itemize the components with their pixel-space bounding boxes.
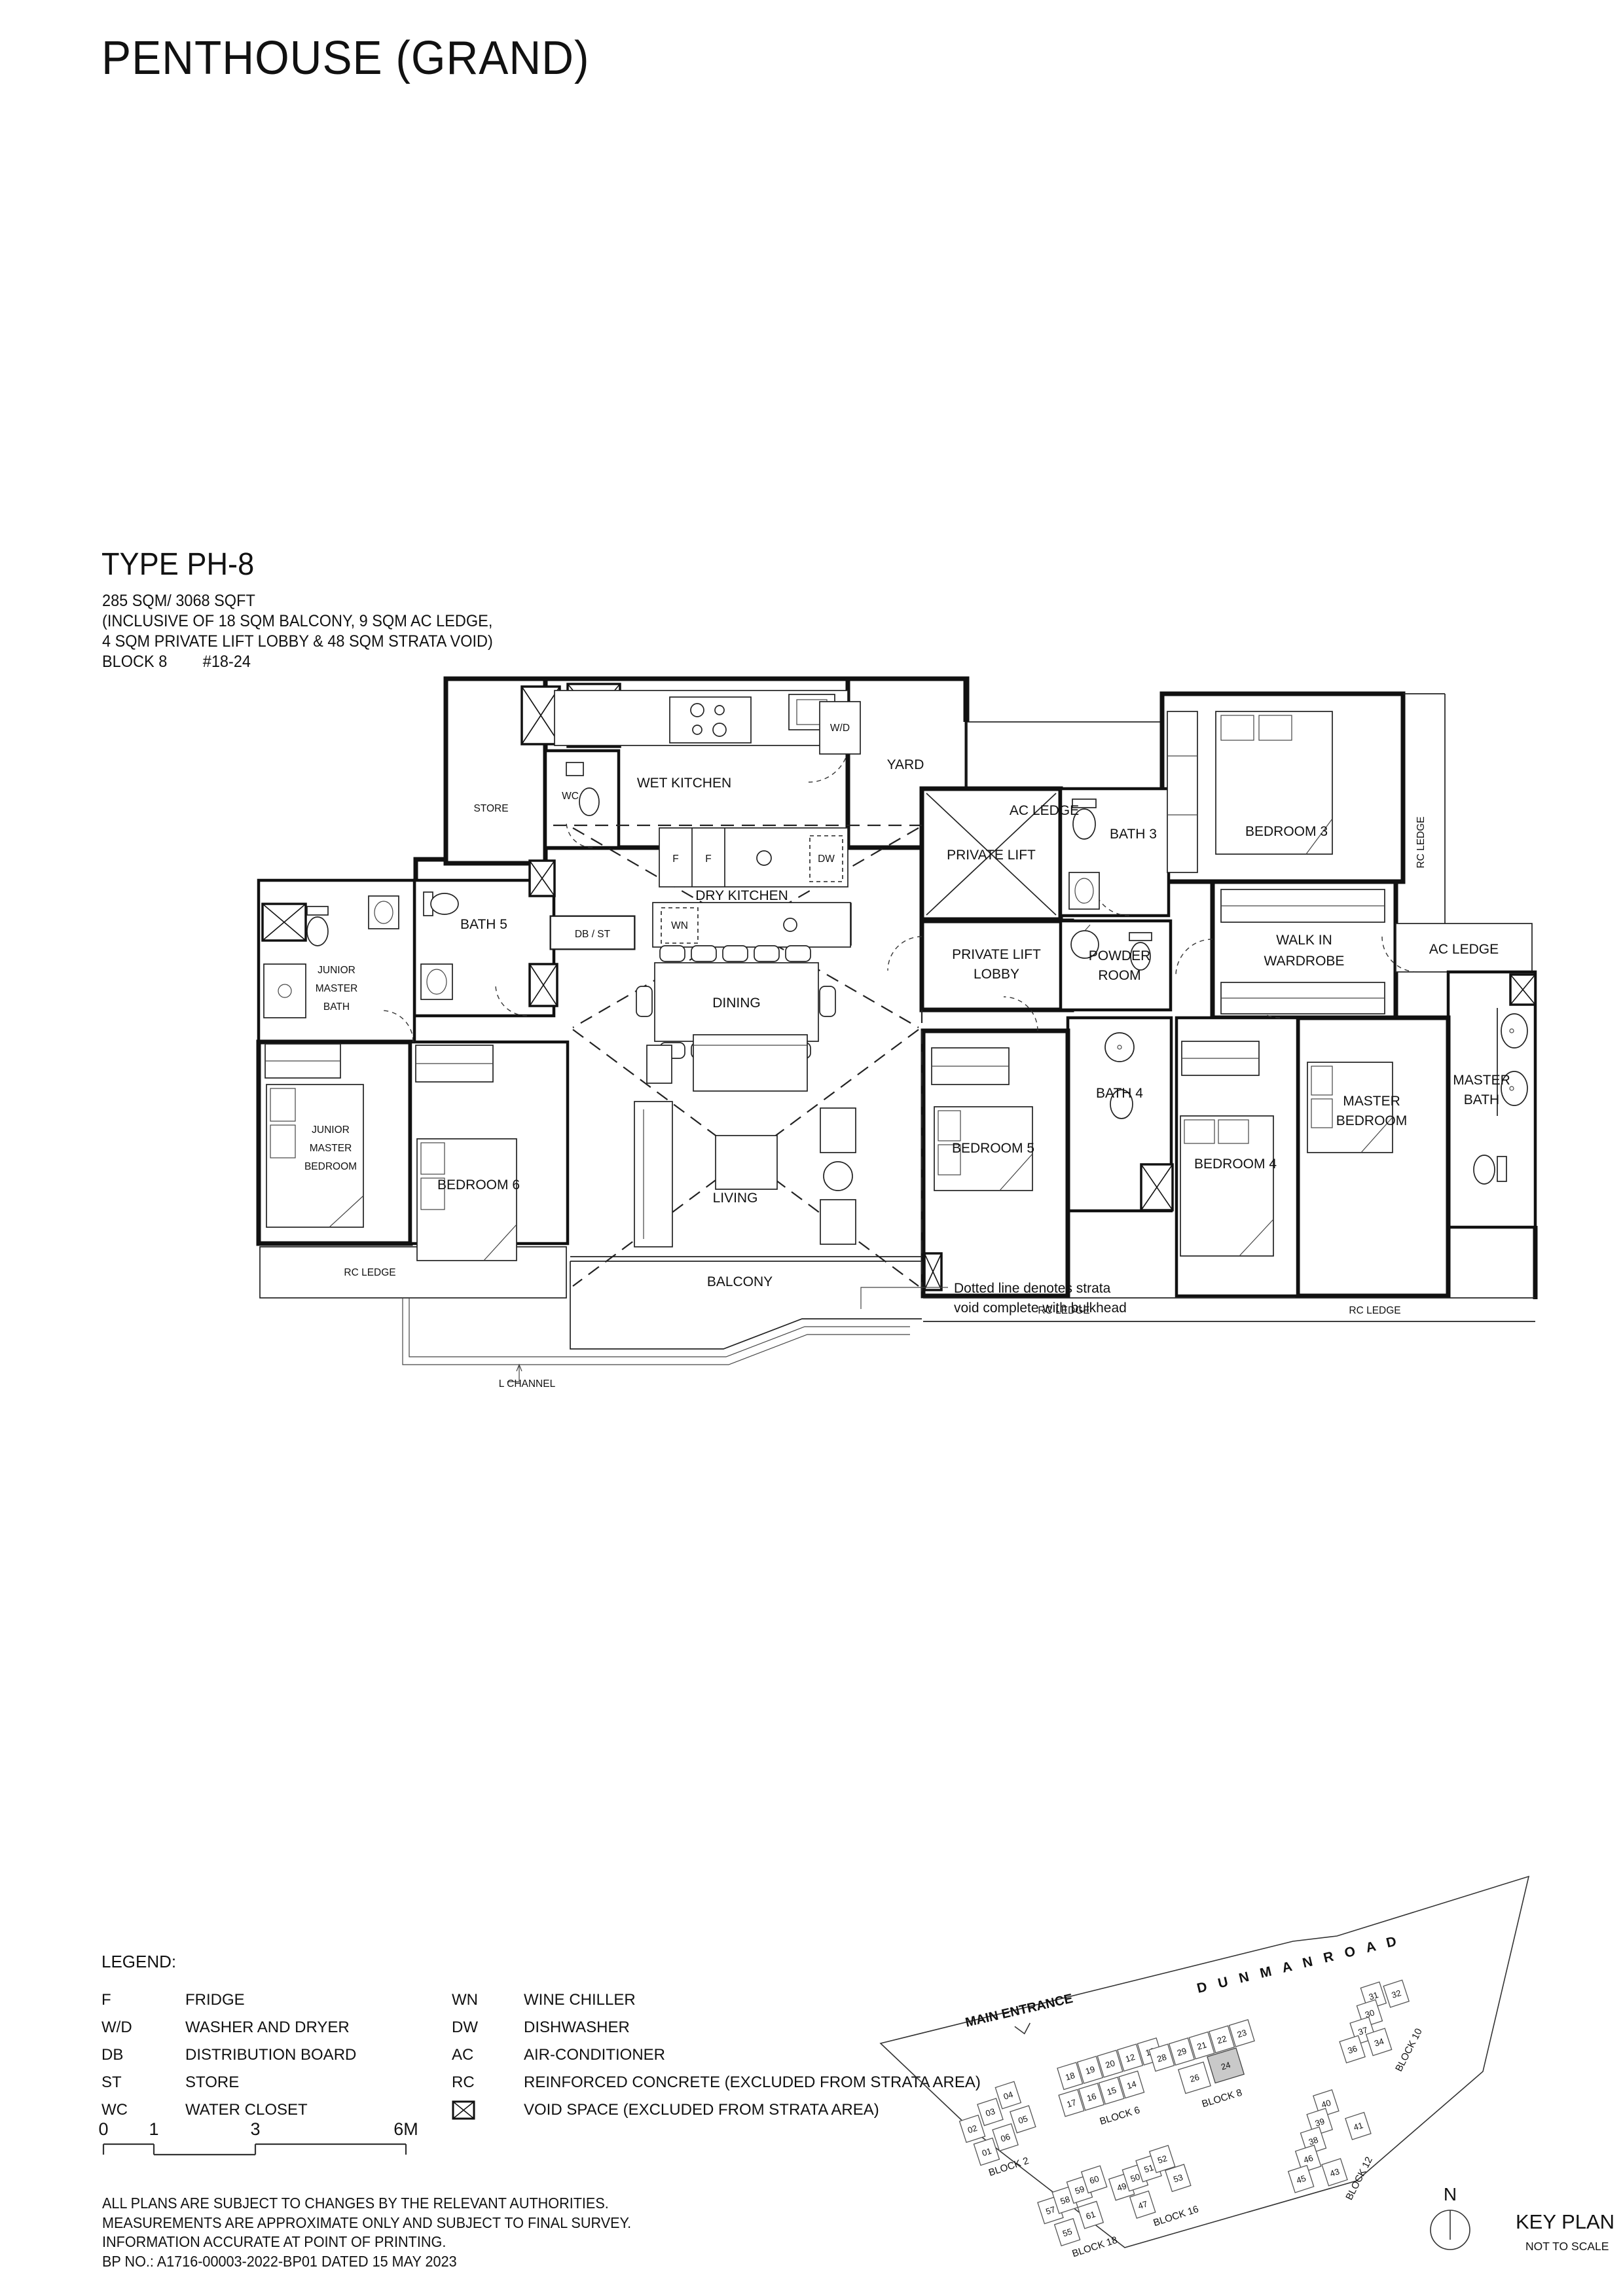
jmbath-toilet-icon xyxy=(307,917,328,946)
page-title: PENTHOUSE (GRAND) xyxy=(101,31,589,85)
sofa xyxy=(693,1035,807,1091)
legend-row: DBDISTRIBUTION BOARD xyxy=(101,2041,442,2069)
label-rc-ledge-br: RC LEDGE xyxy=(1349,1305,1400,1316)
armchair xyxy=(820,1200,856,1244)
room-label-jmbath-3: BATH xyxy=(323,1001,350,1013)
room-label-lobby-2: LOBBY xyxy=(974,967,1019,982)
label-dishwasher: DW xyxy=(818,853,835,865)
keyplan-block8: 28 29 21 22 23 26 24 BLOCK 8 xyxy=(1149,2020,1269,2120)
room-label-bath5: BATH 5 xyxy=(460,917,507,932)
room-label-yard: YARD xyxy=(887,757,924,772)
svg-text:BLOCK 12: BLOCK 12 xyxy=(1343,2155,1375,2202)
label-l-channel: L CHANNEL xyxy=(499,1378,556,1390)
coffee-table xyxy=(716,1136,777,1189)
room-label-jmbath-1: JUNIOR xyxy=(318,965,356,976)
room-label-powder-2: ROOM xyxy=(1098,968,1140,983)
strata-note-1: Dotted line denotes strata xyxy=(954,1281,1111,1296)
room-label-jmbath-2: MASTER xyxy=(316,983,358,994)
room-label-lobby-1: PRIVATE LIFT xyxy=(952,947,1041,962)
armchair xyxy=(820,1108,856,1153)
label-fridge-2: F xyxy=(705,853,711,865)
room-label-master-2: BEDROOM xyxy=(1336,1113,1408,1128)
keyplan-block16: 49 50 51 52 47 53 BLOCK 16 xyxy=(1104,2143,1200,2238)
main-entrance: MAIN ENTRANCE xyxy=(964,1992,1078,2047)
type-details: 285 SQM/ 3068 SQFT (INCLUSIVE OF 18 SQM … xyxy=(102,591,493,672)
svg-text:BLOCK 10: BLOCK 10 xyxy=(1393,2026,1425,2073)
label-ac-ledge-right: AC LEDGE xyxy=(1429,942,1499,957)
label-washer-dryer: W/D xyxy=(830,723,850,734)
svg-text:N: N xyxy=(1444,2184,1457,2204)
label-ac-ledge-top: AC LEDGE xyxy=(1010,803,1079,818)
room-label-wc: WC xyxy=(562,791,579,802)
room-label-bedroom5: BEDROOM 5 xyxy=(952,1141,1034,1156)
svg-text:BLOCK 8: BLOCK 8 xyxy=(1201,2087,1244,2110)
scale-bar: 0 1 3 6M xyxy=(98,2119,452,2172)
label-wine-chiller: WN xyxy=(671,920,688,931)
disclaimer-line1: ALL PLANS ARE SUBJECT TO CHANGES BY THE … xyxy=(102,2194,631,2214)
master-toilet-icon xyxy=(1474,1155,1495,1184)
bed-bedroom6 xyxy=(417,1139,517,1261)
inclusive-line2: 4 SQM PRIVATE LIFT LOBBY & 48 SQM STRATA… xyxy=(102,632,493,652)
room-label-balcony: BALCONY xyxy=(707,1274,773,1289)
bed-junior-master xyxy=(266,1085,363,1227)
disclaimer: ALL PLANS ARE SUBJECT TO CHANGES BY THE … xyxy=(102,2194,631,2271)
void-space-icon xyxy=(452,2100,524,2120)
room-label-dry-kitchen: DRY KITCHEN xyxy=(695,888,788,903)
room-label-mbath-2: BATH xyxy=(1464,1092,1499,1107)
keyplan-title: KEY PLAN xyxy=(1516,2210,1614,2233)
entrance-arrow-icon xyxy=(1015,2023,1032,2036)
bed-bedroom4 xyxy=(1180,1116,1273,1256)
hob-icon xyxy=(670,697,751,743)
room-label-walkin-2: WARDROBE xyxy=(1264,954,1345,969)
label-fridge-1: F xyxy=(672,853,678,865)
legend-row: STSTORE xyxy=(101,2069,442,2096)
scale-6m: 6M xyxy=(393,2119,418,2139)
bath4-basin-icon xyxy=(1105,1033,1134,1062)
room-label-private-lift: PRIVATE LIFT xyxy=(947,848,1036,863)
room-label-powder-1: POWDER xyxy=(1089,948,1151,963)
master-basin-icon xyxy=(1501,1014,1527,1048)
room-label-wet-kitchen: WET KITCHEN xyxy=(637,776,731,791)
keyplan-block2: 02 03 04 01 06 05 BLOCK 2 xyxy=(953,2079,1047,2182)
keyplan-block10: 31 32 30 37 36 34 BLOCK 10 xyxy=(1326,1973,1434,2089)
site-boundary xyxy=(881,1876,1529,2248)
strata-note-2: void complete with bulkhead xyxy=(954,1300,1127,1316)
room-label-jmbed-2: MASTER xyxy=(310,1143,352,1154)
key-plan: MAIN ENTRANCE D U N M A N R O A D 18 19 … xyxy=(871,1813,1623,2284)
room-label-store: STORE xyxy=(473,803,508,814)
label-rc-ledge-bl: RC LEDGE xyxy=(344,1267,395,1278)
room-label-master-1: MASTER xyxy=(1343,1094,1400,1109)
room-label-dining: DINING xyxy=(712,996,761,1011)
inclusive-line1: (INCLUSIVE OF 18 SQM BALCONY, 9 SQM AC L… xyxy=(102,611,493,632)
disclaimer-line3: INFORMATION ACCURATE AT POINT OF PRINTIN… xyxy=(102,2233,631,2252)
bath5-toilet-icon xyxy=(431,893,458,914)
room-label-bath4: BATH 4 xyxy=(1096,1086,1143,1101)
living-furniture xyxy=(634,1035,856,1247)
room-label-bedroom3: BEDROOM 3 xyxy=(1245,824,1328,839)
keyplan-block12: 40 39 38 46 45 43 41 BLOCK 12 xyxy=(1268,2083,1389,2218)
label-rc-ledge-right: RC LEDGE xyxy=(1415,816,1427,868)
legend-row: FFRIDGE xyxy=(101,1986,442,2014)
legend-row: W/DWASHER AND DRYER xyxy=(101,2014,442,2041)
scale-0: 0 xyxy=(98,2119,108,2139)
floorplan-sheet: PENTHOUSE (GRAND) TYPE PH-8 285 SQM/ 306… xyxy=(0,0,1623,2296)
disclaimer-line4: BP NO.: A1716-00003-2022-BP01 DATED 15 M… xyxy=(102,2252,631,2272)
north-compass-icon: N xyxy=(1431,2184,1470,2250)
room-label-jmbed-3: BEDROOM xyxy=(304,1161,357,1172)
room-label-bedroom4: BEDROOM 4 xyxy=(1194,1157,1277,1172)
scale-3: 3 xyxy=(250,2119,260,2139)
type-title: TYPE PH-8 xyxy=(101,547,254,583)
svg-text:BLOCK 6: BLOCK 6 xyxy=(1099,2104,1142,2127)
side-table xyxy=(824,1162,852,1191)
room-label-living: LIVING xyxy=(713,1191,758,1206)
wc-toilet-icon xyxy=(579,788,599,816)
area-text: 285 SQM/ 3068 SQFT xyxy=(102,591,493,611)
svg-text:MAIN ENTRANCE: MAIN ENTRANCE xyxy=(964,1992,1074,2030)
room-label-bedroom6: BEDROOM 6 xyxy=(437,1177,520,1193)
room-label-bath3: BATH 3 xyxy=(1110,827,1157,842)
tv-console xyxy=(634,1102,672,1247)
svg-text:BLOCK 16: BLOCK 16 xyxy=(1152,2204,1199,2229)
scale-1: 1 xyxy=(149,2119,158,2139)
disclaimer-line2: MEASUREMENTS ARE APPROXIMATE ONLY AND SU… xyxy=(102,2214,631,2233)
room-label-walkin-1: WALK IN xyxy=(1276,933,1332,948)
keyplan-subtitle: NOT TO SCALE xyxy=(1525,2240,1609,2253)
room-label-jmbed-1: JUNIOR xyxy=(312,1124,350,1136)
floorplan-drawing: STORE WC WET KITCHEN W/D YARD AC LEDGE B… xyxy=(108,664,1548,1404)
room-label-mbath-1: MASTER xyxy=(1453,1073,1510,1088)
label-db-st: DB / ST xyxy=(575,929,611,940)
